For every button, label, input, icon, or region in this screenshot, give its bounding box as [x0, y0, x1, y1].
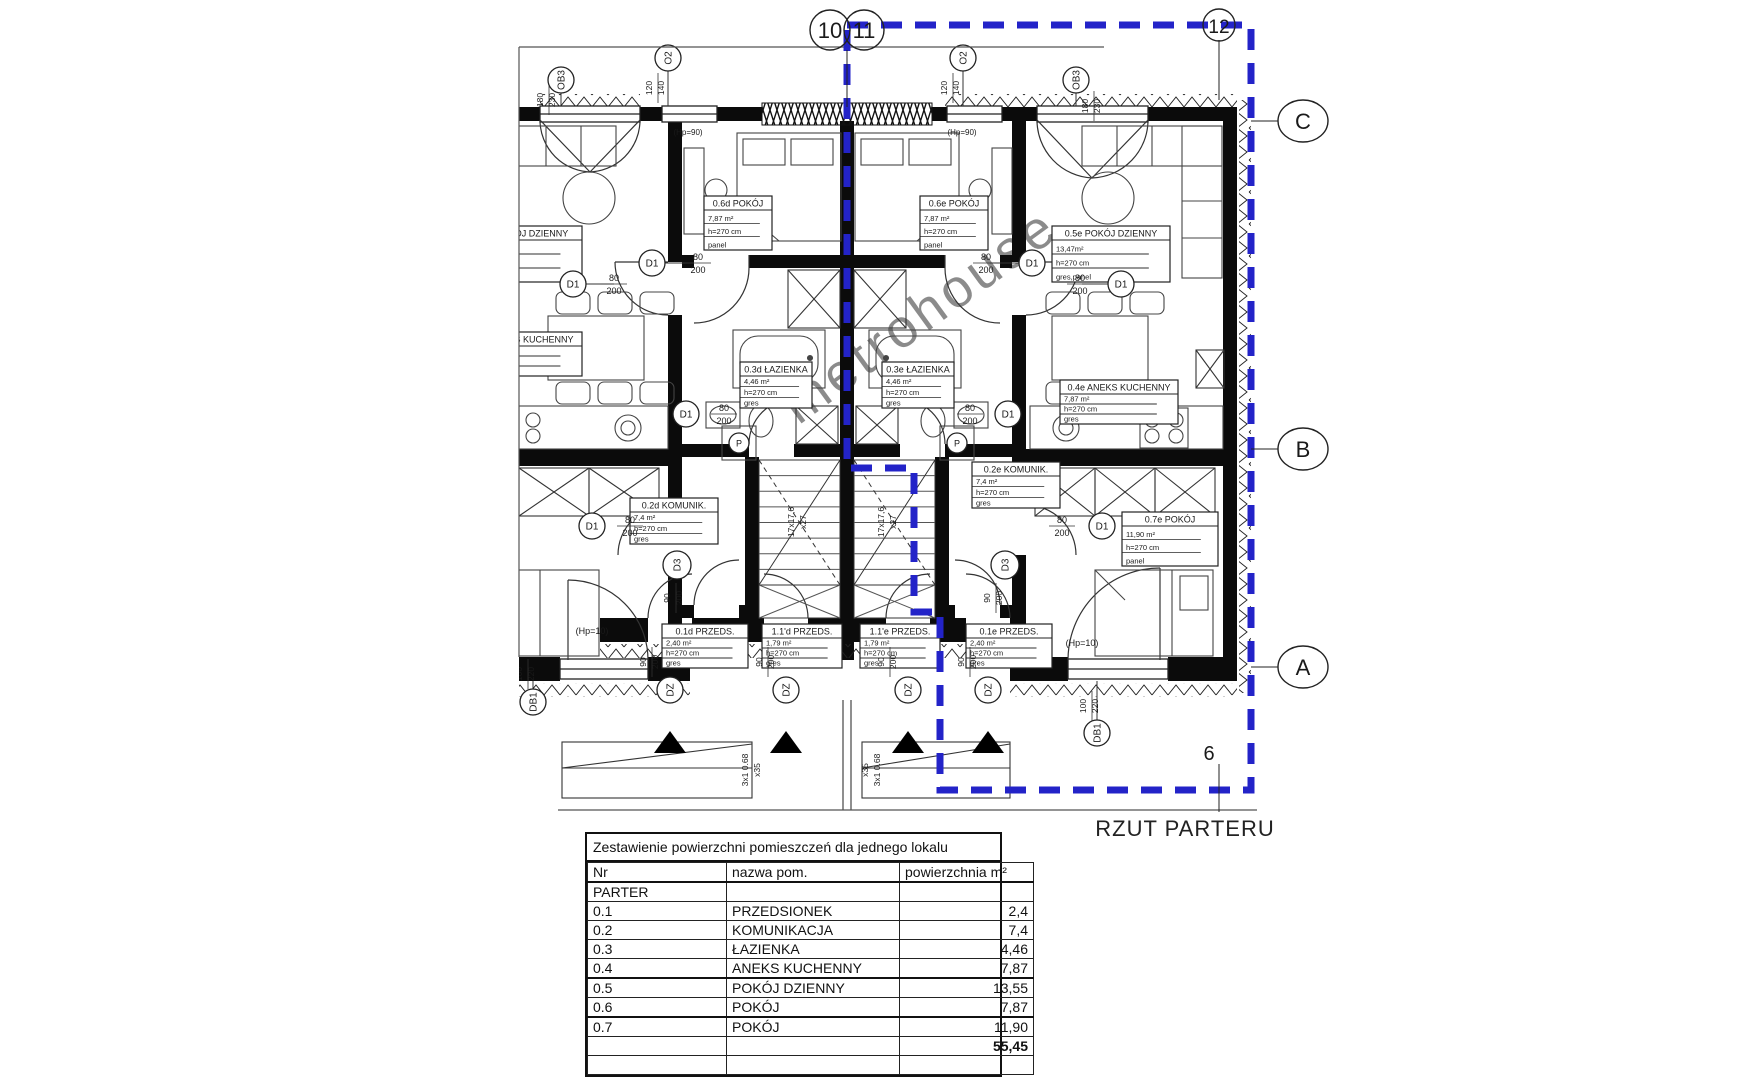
dimension-text: 200 — [1054, 528, 1069, 538]
room-label-row: 7,4 m² — [634, 513, 656, 522]
room-label-title: 1.1'd PRZEDS. — [772, 627, 833, 637]
room-label-row: h=270 cm — [744, 388, 777, 397]
room-label-row: gres — [666, 659, 681, 668]
ob3-marker-label: OB3 — [1072, 70, 1083, 90]
hp10-annotation: (Hp=10) — [576, 626, 609, 636]
col-header-nr: Nr — [588, 863, 727, 883]
room-label-row: gres — [886, 399, 901, 408]
room-label-row: 7,87 m² — [924, 214, 950, 223]
d1-marker-label: D1 — [567, 280, 580, 291]
dimension-text: 90 — [638, 657, 648, 667]
room-area-cell: 2,4 — [900, 902, 1034, 921]
room-label: 0.6d POKÓJ7,87 m²h=270 cmpanel — [704, 196, 772, 250]
room-label-title: 0.6d POKÓJ — [713, 199, 764, 209]
crossed-box — [519, 468, 589, 516]
empty-cell — [727, 1037, 900, 1056]
dimension-text: 80 — [609, 273, 619, 283]
room-label-row: 7,4 m² — [976, 477, 998, 486]
dimension-text: 200 — [888, 655, 898, 669]
dimension-text: x35 — [860, 763, 870, 777]
room-label-row: gres — [1064, 415, 1079, 424]
dimension-text: 120 — [644, 81, 654, 95]
crossed-box — [1196, 350, 1224, 388]
db1-marker-label: DB1 — [529, 692, 540, 712]
room-label: 0.2d KOMUNIK.7,4 m²h=270 cmgres — [630, 498, 718, 544]
dimension-text: 140 — [951, 81, 961, 95]
stair-flight — [759, 460, 840, 618]
room-area-cell: 11,90 — [900, 1017, 1034, 1037]
dz-marker: DZ — [895, 677, 921, 703]
dimension-text: 180 — [535, 93, 545, 107]
dimension-text: 200 — [690, 265, 705, 275]
room-name-cell: ANEKS KUCHENNY — [727, 959, 900, 979]
dimension-text: 140 — [656, 81, 666, 95]
axis-label-A: A — [1296, 655, 1311, 680]
room-label: 0.1e PRZEDS.2,40 m²h=270 cmgres — [966, 624, 1052, 668]
dimension-text: 90 — [982, 593, 992, 603]
room-label: 0.7e POKÓJ11,90 m²h=270 cmpanel — [1122, 512, 1218, 566]
room-nr-cell: 0.5 — [588, 978, 727, 998]
dimension-text: x35 — [752, 763, 762, 777]
room-label-row: 1,79 m² — [864, 639, 890, 648]
col-header-area: powierzchnia m² — [900, 863, 1034, 883]
room-label: 0.4e ANEKS KUCHENNY7,87 m²h=270 cmgres — [1060, 380, 1178, 424]
room-label-row: h=270 cm — [634, 524, 667, 533]
dimension-text: 200 — [674, 591, 684, 605]
room-label-row: h=270 cm — [924, 227, 957, 236]
axis-label-C: C — [1295, 109, 1311, 134]
hp90-annotation: (Hp=90) — [947, 128, 976, 137]
axis-label-11: 11 — [853, 18, 876, 43]
room-label-row: 2,40 m² — [970, 639, 996, 648]
d1-marker: D1 — [639, 250, 665, 276]
p-marker: P — [947, 433, 967, 453]
room-label-title: 0.2d KOMUNIK. — [642, 501, 707, 511]
dimension-text: 200 — [606, 286, 621, 296]
room-label-row: 7,87 m² — [708, 214, 734, 223]
crossed-box — [788, 270, 840, 328]
room-label-row: gres,panel — [1056, 273, 1091, 282]
axis-label-6: 6 — [1203, 743, 1214, 765]
crossed-box — [856, 406, 898, 444]
dimension-text: 80 — [1057, 515, 1067, 525]
dimension-text: x27 — [888, 515, 898, 529]
col-header-name: nazwa pom. — [727, 863, 900, 883]
dimension-text: 90 — [956, 657, 966, 667]
room-label-row: h=270 cm — [976, 488, 1009, 497]
d1-marker: D1 — [1019, 250, 1045, 276]
bed-07e — [1095, 570, 1213, 656]
room-area-cell: 4,46 — [900, 940, 1034, 959]
room-label-title: 0.3e ŁAZIENKA — [886, 365, 950, 375]
dimension-text: 80 — [1075, 273, 1085, 283]
crossed-box — [1155, 468, 1215, 516]
dimension-text: 17x17,6 — [876, 507, 886, 538]
area-table: Zestawienie powierzchni pomieszczeń dla … — [585, 832, 1002, 1077]
room-area-cell: 13,55 — [900, 978, 1034, 998]
dimension-text: 220 — [1090, 699, 1100, 713]
room-label-title: 0.1d PRZEDS. — [675, 627, 734, 637]
dimension-text: 230 — [547, 93, 557, 107]
dz-marker: DZ — [773, 677, 799, 703]
section-cell: PARTER — [588, 882, 727, 902]
dimension-pair: 80200 — [1049, 515, 1075, 538]
dimension-text: 90 — [662, 593, 672, 603]
room-label-row: h=270 cm — [666, 649, 699, 658]
d1-marker: D1 — [579, 513, 605, 539]
dz-marker-label: DZ — [904, 683, 915, 696]
dimension-text: 200 — [968, 655, 978, 669]
p-marker-label: P — [736, 439, 742, 449]
room-label-row: 1,79 m² — [766, 639, 792, 648]
o2-marker: O2 — [655, 45, 681, 71]
room-name-cell: POKÓJ — [727, 998, 900, 1018]
dz-marker: DZ — [657, 677, 683, 703]
room-name-cell: KOMUNIKACJA — [727, 921, 900, 940]
dimension-text: 200 — [766, 655, 776, 669]
axis-label-B: B — [1296, 437, 1311, 462]
d3-marker: D3 — [991, 551, 1019, 579]
room-label-row: h=270 cm — [1064, 405, 1097, 414]
room-label-row: 7,87 m² — [1064, 395, 1090, 404]
hp90-annotation: (Hp=90) — [673, 128, 702, 137]
room-label-row: gres — [744, 399, 759, 408]
dimension-text: 17x17,6 — [786, 507, 796, 538]
room-label-title: 0.4e ANEKS KUCHENNY — [1067, 383, 1170, 393]
dimension-text: 230 — [1092, 99, 1102, 113]
d1-marker: D1 — [1108, 271, 1134, 297]
room-nr-cell: 0.3 — [588, 940, 727, 959]
dimension-pair: 120140 — [644, 73, 666, 103]
room-label-row: panel — [924, 241, 943, 250]
d3-marker-label: D3 — [1001, 558, 1012, 571]
d1-marker: D1 — [995, 401, 1021, 427]
empty-cell — [588, 1056, 727, 1075]
dimension-text: 120 — [939, 81, 949, 95]
dimension-text: 180 — [1080, 99, 1090, 113]
room-nr-cell: 0.6 — [588, 998, 727, 1018]
dimension-text: 90 — [754, 657, 764, 667]
room-label-row: gres — [976, 499, 991, 508]
d1-marker-label: D1 — [646, 259, 659, 270]
axis-label-12: 12 — [1208, 17, 1229, 38]
dimension-text: 3x1 0.68 — [872, 753, 882, 786]
d1-marker: D1 — [560, 271, 586, 297]
dimension-text: 200 — [622, 528, 637, 538]
drawing-caption: RZUT PARTERU — [1080, 816, 1290, 842]
d1-marker-label: D1 — [586, 522, 599, 533]
d1-marker-label: D1 — [1115, 280, 1128, 291]
room-label-title: 0.3d ŁAZIENKA — [744, 365, 808, 375]
room-label-row: 11,90 m² — [1126, 530, 1156, 539]
room-area-cell: 7,87 — [900, 998, 1034, 1018]
dimension-pair: x353x1 0.68 — [860, 753, 882, 786]
dz-marker-label: DZ — [782, 683, 793, 696]
room-name-cell: ŁAZIENKA — [727, 940, 900, 959]
room-area-cell: 7,4 — [900, 921, 1034, 940]
room-nr-cell: 0.4 — [588, 959, 727, 979]
empty-cell — [900, 882, 1034, 902]
ob3-marker: OB3 — [548, 67, 574, 93]
empty-cell — [727, 882, 900, 902]
axis-label-10: 10 — [818, 18, 842, 43]
room-label: 0.3e ŁAZIENKA4,46 m²h=270 cmgres — [882, 362, 954, 408]
room-label: 0.1d PRZEDS.2,40 m²h=270 cmgres — [662, 624, 748, 668]
d1-marker-label: D1 — [1026, 259, 1039, 270]
room-name-cell: POKÓJ DZIENNY — [727, 978, 900, 998]
room-label-title: 1.1'e PRZEDS. — [870, 627, 931, 637]
room-label-title: 0.6e POKÓJ — [929, 199, 980, 209]
d1-marker-label: D1 — [1096, 522, 1109, 533]
room-label: 0.2e KOMUNIK.7,4 m²h=270 cmgres — [972, 462, 1060, 508]
dimension-text: 80 — [965, 403, 975, 413]
room-nr-cell: 0.2 — [588, 921, 727, 940]
p-marker: P — [729, 433, 749, 453]
room-label: 1.1'e PRZEDS.1,79 m²h=270 cmgres — [860, 624, 940, 668]
o2-marker: O2 — [950, 45, 976, 71]
round-table-e — [1082, 172, 1134, 224]
room-label-row: 4,46 m² — [886, 377, 912, 386]
dimension-text: 200 — [650, 655, 660, 669]
crossed-box — [1095, 468, 1155, 516]
db1-marker-label: DB1 — [1093, 723, 1104, 743]
page: { "plan": { "caption": "RZUT PARTERU", "… — [0, 0, 1752, 1080]
room-name-cell: PRZEDSIONEK — [727, 902, 900, 921]
room-label-row: h=270 cm — [1126, 543, 1159, 552]
room-label-row: h=270 cm — [886, 388, 919, 397]
room-label-row: 2,40 m² — [666, 639, 692, 648]
room-label: 0.3d ŁAZIENKA4,46 m²h=270 cmgres — [740, 362, 812, 408]
d3-marker-label: D3 — [673, 558, 684, 571]
dimension-pair: 17x17,6x27 — [786, 507, 808, 538]
dimension-text: 80 — [981, 252, 991, 262]
room-label-row: h=270 cm — [708, 227, 741, 236]
room-label-title: 0.5e POKÓJ DZIENNY — [1065, 229, 1158, 239]
room-label-title: 0.1e PRZEDS. — [979, 627, 1038, 637]
db1-marker: DB1 — [520, 689, 546, 715]
room-name-cell: POKÓJ — [727, 1017, 900, 1037]
room-area-cell: 7,87 — [900, 959, 1034, 979]
dimension-text: 100 — [1078, 699, 1088, 713]
d1-marker: D1 — [673, 401, 699, 427]
o2-marker-label: O2 — [959, 51, 970, 65]
dimension-text: 200 — [994, 591, 1004, 605]
dimension-text: 80 — [719, 403, 729, 413]
area-table-title: Zestawienie powierzchni pomieszczeń dla … — [587, 834, 1000, 862]
room-label-row: panel — [708, 241, 727, 250]
d3-marker: D3 — [663, 551, 691, 579]
room-nr-cell: 0.1 — [588, 902, 727, 921]
dz-marker: DZ — [975, 677, 1001, 703]
floor-plan-area: metrohouse — [0, 0, 1752, 1080]
dimension-text: 200 — [716, 416, 731, 426]
room-nr-cell: 0.7 — [588, 1017, 727, 1037]
crop-mask — [0, 0, 519, 1080]
total-area-cell: 55,45 — [900, 1037, 1034, 1056]
kitchen-d — [519, 406, 668, 449]
dimension-text: x27 — [798, 515, 808, 529]
dimension-text: 3x1 0.68 — [740, 753, 750, 786]
dimension-text: 200 — [962, 416, 977, 426]
room-label-row: 4,46 m² — [744, 377, 770, 386]
room-label-row: 13,47m² — [1056, 245, 1084, 254]
empty-cell — [588, 1037, 727, 1056]
dimension-pair: 17x17,6x27 — [876, 507, 898, 538]
room-label-row: h=270 cm — [1056, 259, 1089, 268]
hp10-annotation: (Hp=10) — [1066, 638, 1099, 648]
ob3-marker-label: OB3 — [557, 70, 568, 90]
stair-flight — [854, 460, 935, 618]
o2-marker-label: O2 — [664, 51, 675, 65]
d1-marker-label: D1 — [1002, 410, 1015, 421]
dimension-text: 90 — [876, 657, 886, 667]
d1-marker: D1 — [1089, 513, 1115, 539]
room-label-title: 0.2e KOMUNIK. — [984, 465, 1049, 475]
dimension-text: 220 — [526, 667, 536, 681]
dimension-pair: 3x1 0.68x35 — [740, 753, 762, 786]
empty-cell — [727, 1056, 900, 1075]
room-label: 0.5e POKÓJ DZIENNY13,47m²h=270 cmgres,pa… — [1052, 226, 1170, 282]
db1-marker: DB1 — [1084, 720, 1110, 746]
room-label-title: 0.7e POKÓJ — [1145, 515, 1196, 525]
dz-marker-label: DZ — [666, 683, 677, 696]
room-label-row: panel — [1126, 557, 1145, 566]
dz-marker-label: DZ — [984, 683, 995, 696]
dimension-text: 80 — [625, 515, 635, 525]
p-marker-label: P — [954, 439, 960, 449]
ob3-marker: OB3 — [1063, 67, 1089, 93]
dimension-text: 200 — [1072, 286, 1087, 296]
dimension-text: 80 — [693, 252, 703, 262]
dimension-text: 200 — [978, 265, 993, 275]
d1-marker-label: D1 — [680, 410, 693, 421]
round-table-d — [563, 172, 615, 224]
room-label: 0.6e POKÓJ7,87 m²h=270 cmpanel — [920, 196, 988, 250]
empty-cell — [900, 1056, 1034, 1075]
